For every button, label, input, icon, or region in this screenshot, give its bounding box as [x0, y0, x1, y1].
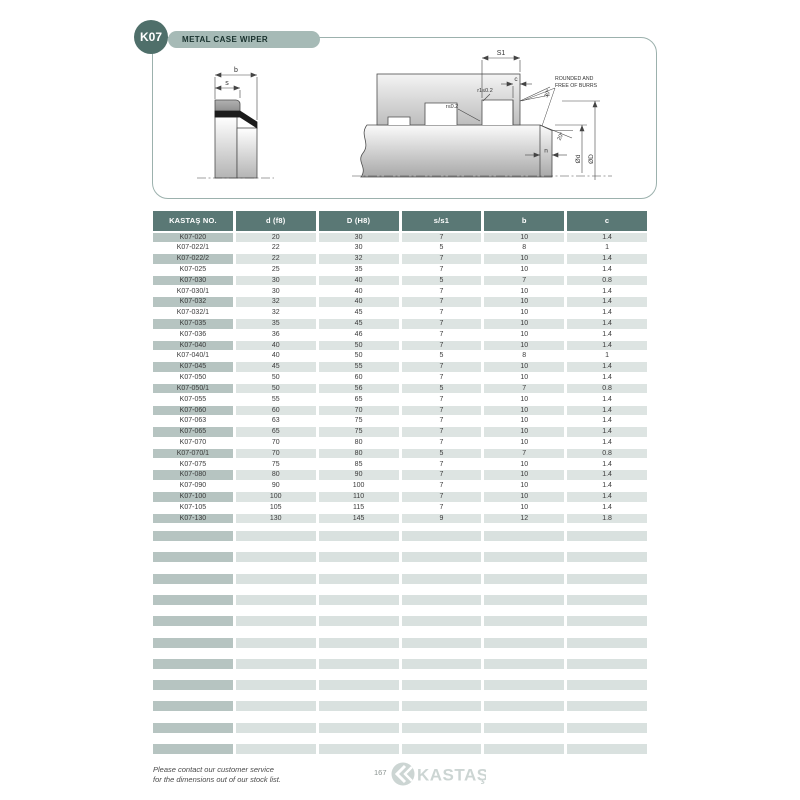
value-cell: 7 — [402, 438, 482, 448]
value-cell: 0.8 — [567, 384, 647, 394]
value-cell: 10 — [484, 481, 564, 491]
empty-cell — [402, 723, 482, 733]
value-cell: 10 — [484, 308, 564, 318]
value-cell: 7 — [402, 470, 482, 480]
value-cell: 5 — [402, 243, 482, 253]
empty-table-row — [153, 744, 647, 754]
table-row: K07-08080907101.4 — [153, 470, 647, 479]
value-cell: 1.4 — [567, 503, 647, 513]
value-cell: 7 — [484, 449, 564, 459]
value-cell: 56 — [319, 384, 399, 394]
value-cell: 65 — [319, 395, 399, 405]
value-cell: 50 — [319, 351, 399, 361]
value-cell: 10 — [484, 503, 564, 513]
technical-drawing: b s — [152, 37, 659, 200]
table-row: K07-02020307101.4 — [153, 233, 647, 242]
value-cell: 10 — [484, 341, 564, 351]
table-row: K07-04545557101.4 — [153, 362, 647, 371]
value-cell: 40 — [319, 287, 399, 297]
part-number-cell: K07-070/1 — [153, 449, 233, 459]
page-number: 167 — [374, 768, 387, 777]
value-cell: 40 — [319, 297, 399, 307]
value-cell: 9 — [402, 514, 482, 524]
column-header: D (H8) — [319, 211, 399, 231]
value-cell: 5 — [402, 384, 482, 394]
empty-cell — [236, 659, 316, 669]
part-number-cell: K07-040/1 — [153, 351, 233, 361]
empty-cell — [484, 531, 564, 541]
value-cell: 1.4 — [567, 460, 647, 470]
part-number-cell: K07-090 — [153, 481, 233, 491]
value-cell: 115 — [319, 503, 399, 513]
value-cell: 10 — [484, 460, 564, 470]
value-cell: 45 — [236, 362, 316, 372]
value-cell: 12 — [484, 514, 564, 524]
part-number-cell: K07-036 — [153, 330, 233, 340]
value-cell: 32 — [319, 254, 399, 264]
value-cell: 10 — [484, 319, 564, 329]
value-cell: 40 — [236, 341, 316, 351]
table-row: K07-02525357101.4 — [153, 265, 647, 274]
column-header: c — [567, 211, 647, 231]
value-cell: 60 — [319, 373, 399, 383]
value-cell: 5 — [402, 449, 482, 459]
value-cell: 7 — [402, 503, 482, 513]
part-number-cell: K07-065 — [153, 427, 233, 437]
empty-cell — [567, 659, 647, 669]
value-cell: 0.8 — [567, 449, 647, 459]
empty-cell — [236, 680, 316, 690]
value-cell: 7 — [402, 308, 482, 318]
part-number-cell: K07-022/2 — [153, 254, 233, 264]
empty-cell — [402, 680, 482, 690]
value-cell: 1.4 — [567, 427, 647, 437]
empty-cell — [402, 701, 482, 711]
empty-cell — [319, 638, 399, 648]
value-cell: 1.4 — [567, 308, 647, 318]
table-row: K07-032/132457101.4 — [153, 308, 647, 317]
value-cell: 8 — [484, 243, 564, 253]
value-cell: 80 — [319, 449, 399, 459]
dim-s1-label: S1 — [497, 50, 506, 57]
empty-cell — [153, 595, 233, 605]
dia-bore-label: ØD — [588, 154, 595, 164]
empty-cell — [153, 744, 233, 754]
value-cell: 7 — [402, 265, 482, 275]
dim-b-label: b — [234, 67, 238, 74]
empty-cell — [153, 701, 233, 711]
value-cell: 65 — [236, 427, 316, 437]
value-cell: 145 — [319, 514, 399, 524]
value-cell: 10 — [484, 233, 564, 243]
value-cell: 1.4 — [567, 287, 647, 297]
value-cell: 1.4 — [567, 330, 647, 340]
part-number-cell: K07-035 — [153, 319, 233, 329]
empty-table-row — [153, 659, 647, 669]
column-header: KASTAŞ NO. — [153, 211, 233, 231]
value-cell: 130 — [236, 514, 316, 524]
empty-table-row — [153, 616, 647, 626]
value-cell: 7 — [402, 460, 482, 470]
value-cell: 20 — [236, 233, 316, 243]
empty-cell — [402, 531, 482, 541]
value-cell: 110 — [319, 492, 399, 502]
value-cell: 7 — [402, 416, 482, 426]
value-cell: 105 — [236, 503, 316, 513]
empty-cell — [484, 723, 564, 733]
radius-r1-label: r1≤0.2 — [477, 88, 493, 94]
empty-cell — [484, 574, 564, 584]
value-cell: 32 — [236, 297, 316, 307]
value-cell: 60 — [236, 406, 316, 416]
value-cell: 7 — [402, 341, 482, 351]
burrs-note-line2: FREE OF BURRS — [555, 83, 598, 89]
value-cell: 7 — [402, 233, 482, 243]
empty-cell — [484, 616, 564, 626]
empty-cell — [484, 659, 564, 669]
value-cell: 10 — [484, 297, 564, 307]
value-cell: 90 — [319, 470, 399, 480]
table-row: K07-1001001107101.4 — [153, 492, 647, 501]
value-cell: 30 — [319, 243, 399, 253]
part-number-cell: K07-032/1 — [153, 308, 233, 318]
empty-cell — [319, 701, 399, 711]
table-row: K07-050/15056570.8 — [153, 384, 647, 393]
empty-cell — [153, 552, 233, 562]
empty-cell — [153, 616, 233, 626]
empty-table-row — [153, 680, 647, 690]
value-cell: 22 — [236, 254, 316, 264]
value-cell: 7 — [484, 384, 564, 394]
dia-rod-label: Ød — [575, 154, 582, 163]
empty-cell — [484, 595, 564, 605]
value-cell: 7 — [402, 362, 482, 372]
part-number-cell: K07-130 — [153, 514, 233, 524]
empty-table-row — [153, 638, 647, 648]
empty-cell — [484, 744, 564, 754]
value-cell: 7 — [402, 492, 482, 502]
value-cell: 45 — [319, 319, 399, 329]
radius-r-label: r≤0.2 — [446, 104, 459, 110]
value-cell: 7 — [402, 287, 482, 297]
part-number-cell: K07-060 — [153, 406, 233, 416]
value-cell: 90 — [236, 481, 316, 491]
empty-cell — [153, 680, 233, 690]
empty-cell — [402, 744, 482, 754]
value-cell: 7 — [402, 297, 482, 307]
page-title: METAL CASE WIPER — [168, 31, 320, 48]
footer-note: Please contact our customer service for … — [153, 765, 281, 784]
empty-cell — [153, 723, 233, 733]
empty-cell — [402, 552, 482, 562]
empty-cell — [484, 701, 564, 711]
value-cell: 7 — [402, 481, 482, 491]
empty-cell — [236, 701, 316, 711]
value-cell: 1 — [567, 351, 647, 361]
column-header: b — [484, 211, 564, 231]
value-cell: 35 — [319, 265, 399, 275]
value-cell: 55 — [236, 395, 316, 405]
value-cell: 80 — [236, 470, 316, 480]
footer-note-line1: Please contact our customer service — [153, 765, 281, 775]
empty-cell — [236, 744, 316, 754]
value-cell: 10 — [484, 470, 564, 480]
table-row: K07-06060707101.4 — [153, 406, 647, 415]
value-cell: 7 — [402, 330, 482, 340]
value-cell: 36 — [236, 330, 316, 340]
empty-cell — [236, 723, 316, 733]
value-cell: 5 — [402, 351, 482, 361]
value-cell: 50 — [236, 373, 316, 383]
empty-cell — [153, 531, 233, 541]
empty-cell — [236, 552, 316, 562]
empty-cell — [567, 638, 647, 648]
table-body: K07-02020307101.4K07-022/12230581K07-022… — [153, 233, 647, 524]
table-row: K07-07575857101.4 — [153, 460, 647, 469]
value-cell: 1.4 — [567, 297, 647, 307]
value-cell: 1.4 — [567, 470, 647, 480]
value-cell: 40 — [319, 276, 399, 286]
dim-n-label: n — [544, 148, 548, 155]
value-cell: 30 — [236, 287, 316, 297]
value-cell: 46 — [319, 330, 399, 340]
value-cell: 10 — [484, 438, 564, 448]
value-cell: 10 — [484, 362, 564, 372]
empty-cell — [567, 723, 647, 733]
empty-table-row — [153, 574, 647, 584]
value-cell: 7 — [402, 395, 482, 405]
logo-wordmark: KASTAŞ — [417, 766, 486, 785]
value-cell: 32 — [236, 308, 316, 318]
installation-section — [361, 74, 552, 177]
table-row: K07-040/14050581 — [153, 351, 647, 360]
part-number-cell: K07-025 — [153, 265, 233, 275]
value-cell: 1.4 — [567, 481, 647, 491]
empty-cell — [319, 595, 399, 605]
value-cell: 30 — [236, 276, 316, 286]
table-row: K07-030/130407101.4 — [153, 287, 647, 296]
empty-cell — [567, 595, 647, 605]
empty-cell — [319, 531, 399, 541]
empty-cell — [402, 574, 482, 584]
value-cell: 10 — [484, 416, 564, 426]
value-cell: 7 — [402, 427, 482, 437]
empty-cell — [402, 595, 482, 605]
part-number-cell: K07-055 — [153, 395, 233, 405]
value-cell: 22 — [236, 243, 316, 253]
value-cell: 75 — [319, 416, 399, 426]
empty-cell — [567, 744, 647, 754]
table-row: K07-1051051157101.4 — [153, 503, 647, 512]
part-number-cell: K07-105 — [153, 503, 233, 513]
empty-cell — [402, 616, 482, 626]
empty-cell — [484, 552, 564, 562]
empty-cell — [567, 680, 647, 690]
value-cell: 10 — [484, 427, 564, 437]
value-cell: 8 — [484, 351, 564, 361]
value-cell: 7 — [402, 406, 482, 416]
value-cell: 1.4 — [567, 319, 647, 329]
empty-cell — [484, 680, 564, 690]
value-cell: 40 — [236, 351, 316, 361]
value-cell: 1.4 — [567, 373, 647, 383]
value-cell: 10 — [484, 265, 564, 275]
value-cell: 75 — [236, 460, 316, 470]
part-number-cell: K07-050/1 — [153, 384, 233, 394]
value-cell: 1.4 — [567, 254, 647, 264]
part-number-cell: K07-032 — [153, 297, 233, 307]
part-number-cell: K07-022/1 — [153, 243, 233, 253]
part-number-cell: K07-045 — [153, 362, 233, 372]
value-cell: 1.4 — [567, 265, 647, 275]
table-row: K07-07070807101.4 — [153, 438, 647, 447]
part-number-cell: K07-050 — [153, 373, 233, 383]
value-cell: 85 — [319, 460, 399, 470]
empty-table-row — [153, 723, 647, 733]
empty-cell — [236, 616, 316, 626]
value-cell: 7 — [402, 254, 482, 264]
empty-cell — [319, 744, 399, 754]
part-number-cell: K07-070 — [153, 438, 233, 448]
table-empty-rows — [153, 531, 647, 754]
value-cell: 35 — [236, 319, 316, 329]
wiper-cross-section — [215, 100, 257, 178]
table-row: K07-05555657101.4 — [153, 395, 647, 404]
product-code-badge: K07 — [134, 20, 168, 54]
value-cell: 55 — [319, 362, 399, 372]
value-cell: 50 — [236, 384, 316, 394]
value-cell: 10 — [484, 395, 564, 405]
empty-cell — [153, 574, 233, 584]
footer-note-line2: for the dimensions out of our stock list… — [153, 775, 281, 785]
value-cell: 1 — [567, 243, 647, 253]
empty-cell — [319, 616, 399, 626]
table-row: K07-0303040570.8 — [153, 276, 647, 285]
empty-cell — [236, 595, 316, 605]
value-cell: 70 — [319, 406, 399, 416]
value-cell: 10 — [484, 406, 564, 416]
table-row: K07-070/17080570.8 — [153, 449, 647, 458]
value-cell: 1.4 — [567, 416, 647, 426]
value-cell: 1.4 — [567, 395, 647, 405]
empty-cell — [567, 574, 647, 584]
part-number-cell: K07-080 — [153, 470, 233, 480]
empty-cell — [567, 531, 647, 541]
value-cell: 10 — [484, 330, 564, 340]
value-cell: 70 — [236, 449, 316, 459]
dim-s-label: s — [225, 80, 229, 87]
value-cell: 10 — [484, 373, 564, 383]
table-row: K07-022/12230581 — [153, 243, 647, 252]
empty-cell — [319, 574, 399, 584]
value-cell: 100 — [319, 481, 399, 491]
dimensions-table: KASTAŞ NO.d (f8)D (H8)s/s1bc K07-0202030… — [153, 211, 647, 765]
value-cell: 70 — [236, 438, 316, 448]
table-row: K07-06565757101.4 — [153, 427, 647, 436]
value-cell: 1.8 — [567, 514, 647, 524]
value-cell: 5 — [402, 276, 482, 286]
empty-cell — [567, 552, 647, 562]
value-cell: 1.4 — [567, 341, 647, 351]
value-cell: 50 — [319, 341, 399, 351]
table-row: K07-03232407101.4 — [153, 297, 647, 306]
value-cell: 25 — [236, 265, 316, 275]
value-cell: 1.4 — [567, 438, 647, 448]
value-cell: 0.8 — [567, 276, 647, 286]
table-header-row: KASTAŞ NO.d (f8)D (H8)s/s1bc — [153, 211, 647, 231]
empty-cell — [236, 574, 316, 584]
value-cell: 10 — [484, 287, 564, 297]
empty-cell — [319, 552, 399, 562]
empty-cell — [319, 680, 399, 690]
angle-20-label: 20° — [557, 132, 566, 142]
empty-cell — [567, 616, 647, 626]
empty-table-row — [153, 531, 647, 541]
empty-cell — [319, 659, 399, 669]
value-cell: 75 — [319, 427, 399, 437]
value-cell: 1.4 — [567, 492, 647, 502]
burrs-note-line1: ROUNDED AND — [555, 76, 594, 82]
value-cell: 1.4 — [567, 362, 647, 372]
part-number-cell: K07-100 — [153, 492, 233, 502]
table-row: K07-04040507101.4 — [153, 341, 647, 350]
value-cell: 1.4 — [567, 406, 647, 416]
empty-cell — [567, 701, 647, 711]
value-cell: 100 — [236, 492, 316, 502]
empty-table-row — [153, 595, 647, 605]
empty-table-row — [153, 552, 647, 562]
value-cell: 10 — [484, 492, 564, 502]
table-row: K07-1301301459121.8 — [153, 514, 647, 523]
empty-cell — [236, 638, 316, 648]
angle-30-label: 30° — [544, 89, 553, 99]
value-cell: 7 — [402, 373, 482, 383]
value-cell: 1.4 — [567, 233, 647, 243]
value-cell: 10 — [484, 254, 564, 264]
table-row: K07-03636467101.4 — [153, 330, 647, 339]
column-header: d (f8) — [236, 211, 316, 231]
empty-cell — [236, 531, 316, 541]
value-cell: 7 — [402, 319, 482, 329]
empty-cell — [153, 659, 233, 669]
table-row: K07-03535457101.4 — [153, 319, 647, 328]
empty-cell — [402, 638, 482, 648]
part-number-cell: K07-075 — [153, 460, 233, 470]
part-number-cell: K07-040 — [153, 341, 233, 351]
part-number-cell: K07-030 — [153, 276, 233, 286]
table-row: K07-05050607101.4 — [153, 373, 647, 382]
value-cell: 45 — [319, 308, 399, 318]
empty-cell — [402, 659, 482, 669]
value-cell: 80 — [319, 438, 399, 448]
part-number-cell: K07-030/1 — [153, 287, 233, 297]
empty-cell — [484, 638, 564, 648]
table-row: K07-06363757101.4 — [153, 416, 647, 425]
empty-cell — [153, 638, 233, 648]
value-cell: 63 — [236, 416, 316, 426]
empty-table-row — [153, 701, 647, 711]
value-cell: 30 — [319, 233, 399, 243]
empty-cell — [319, 723, 399, 733]
value-cell: 7 — [484, 276, 564, 286]
table-row: K07-022/222327101.4 — [153, 254, 647, 263]
table-row: K07-090901007101.4 — [153, 481, 647, 490]
column-header: s/s1 — [402, 211, 482, 231]
part-number-cell: K07-020 — [153, 233, 233, 243]
part-number-cell: K07-063 — [153, 416, 233, 426]
